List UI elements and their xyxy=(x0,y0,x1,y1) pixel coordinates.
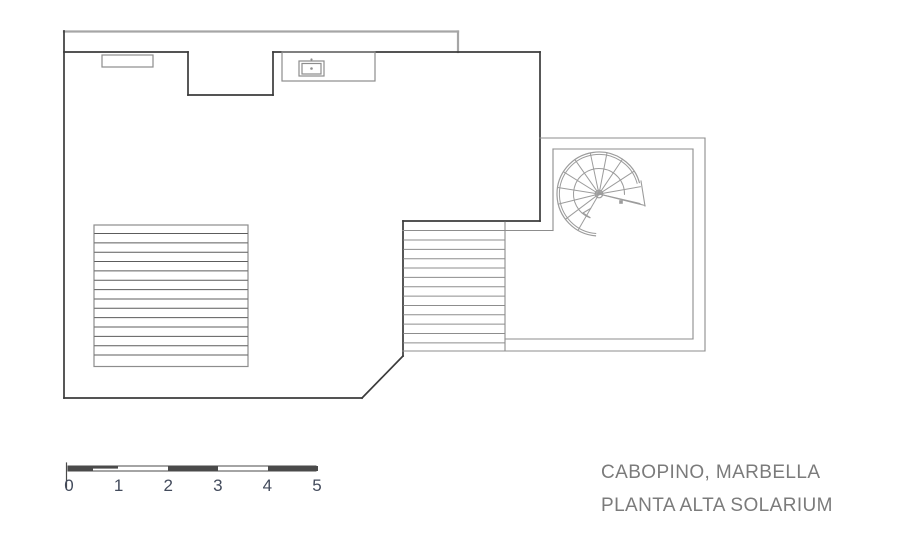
scale-bar: 012345 xyxy=(64,463,321,495)
scalebar-segment xyxy=(68,466,93,471)
fixture-rect xyxy=(282,52,375,81)
scalebar-segment xyxy=(268,466,318,471)
title-block: CABOPINO, MARBELLA PLANTA ALTA SOLARIUM xyxy=(601,456,833,522)
scalebar-label: 1 xyxy=(114,476,123,495)
rooftop-fixtures xyxy=(102,52,375,81)
spiral-tread-line xyxy=(558,187,599,194)
scalebar-segment xyxy=(93,466,118,469)
spiral-hub xyxy=(598,193,601,196)
fixture-rect xyxy=(102,55,153,67)
sheet-title: PLANTA ALTA SOLARIUM xyxy=(601,489,833,522)
scalebar-segment xyxy=(168,466,218,471)
scalebar-label: 2 xyxy=(163,476,172,495)
pergola-slats xyxy=(94,225,248,367)
scalebar-label: 5 xyxy=(312,476,321,495)
floorplan-canvas: 012345 CABOPINO, MARBELLA PLANTA ALTA SO… xyxy=(0,0,908,551)
spiral-entry-chord xyxy=(641,181,645,206)
sink-dot xyxy=(310,67,313,70)
spiral-staircase xyxy=(557,152,645,236)
straight-stair-treads xyxy=(404,240,505,343)
terrace-parapet xyxy=(403,138,705,351)
roof-edge-strip xyxy=(64,32,458,53)
spiral-newel-marker xyxy=(619,200,623,204)
scalebar-label: 4 xyxy=(263,476,272,495)
scalebar-label: 0 xyxy=(64,476,73,495)
project-title: CABOPINO, MARBELLA xyxy=(601,456,833,489)
sink-dot xyxy=(310,58,312,60)
wall-line xyxy=(362,356,403,398)
scalebar-label: 3 xyxy=(213,476,222,495)
